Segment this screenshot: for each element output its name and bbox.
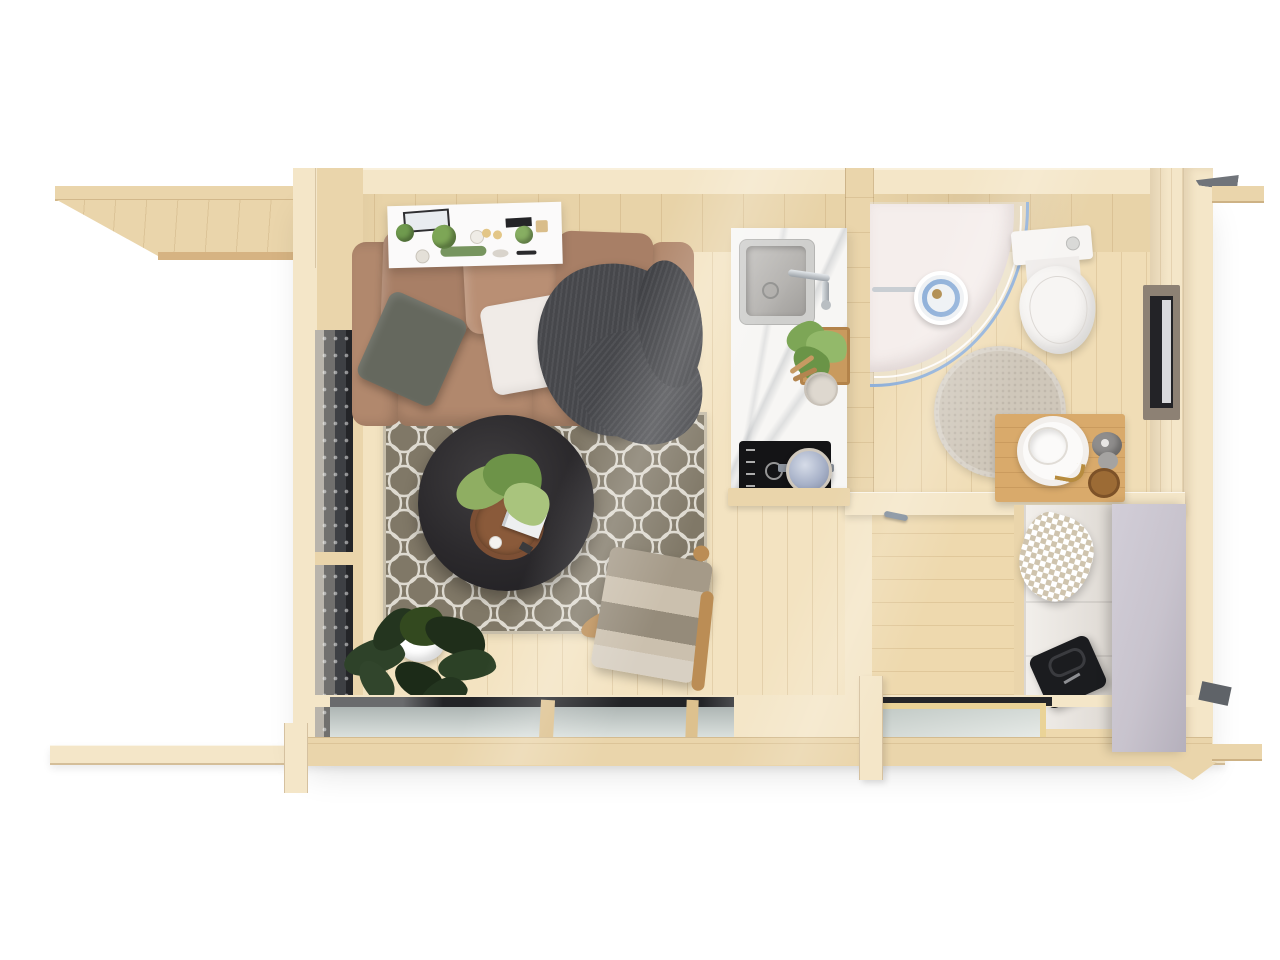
wall-shelf	[387, 202, 563, 269]
beam-stub-bottom-right	[1212, 744, 1262, 761]
right-wall-outer-post	[1183, 168, 1213, 765]
shelf-plant-3	[515, 225, 533, 243]
living-window-frame	[330, 697, 734, 707]
armchair	[576, 532, 729, 696]
shower-head	[914, 271, 968, 325]
door-mid-bar	[315, 552, 353, 565]
utensil-cup	[804, 372, 838, 406]
vessel-sink-rim	[1028, 427, 1068, 465]
toilet	[1008, 222, 1105, 359]
shelf-pen	[516, 250, 536, 255]
corner-post-top-left	[293, 168, 316, 268]
cooktop-mark-2	[746, 461, 755, 463]
shelf-bowl-2	[415, 249, 429, 263]
cooktop-mark-4	[746, 485, 755, 487]
shelf-egg-2	[493, 230, 502, 239]
post-bottom-middle	[859, 676, 883, 780]
kitchen-faucet-base	[821, 300, 831, 310]
porch-top-rail	[55, 186, 300, 201]
cooktop-mark-3	[746, 473, 755, 475]
shower-head-center	[932, 289, 942, 299]
wardrobe-shelf-line-1	[1026, 601, 1122, 603]
gray-sliding-door	[1112, 504, 1186, 752]
shelf-plant-2	[432, 225, 457, 250]
living-window-mullion-2	[685, 700, 698, 740]
cooktop-mark-1	[746, 449, 755, 451]
top-wall-outer-beam	[293, 168, 1212, 197]
stone-soap-dot	[1101, 439, 1109, 447]
shelf-sticks	[536, 220, 548, 232]
living-window-mullion-1	[539, 700, 555, 741]
bottom-wall-outer-face	[293, 737, 1212, 766]
shelf-egg-1	[482, 229, 491, 238]
shelf-greens-row2	[440, 246, 486, 257]
porch-deck-edge	[158, 252, 300, 260]
right-wall-window	[1143, 285, 1180, 420]
tray-cup	[489, 536, 502, 549]
beam-stub-top-right	[1212, 186, 1264, 203]
bag-handle	[1045, 645, 1089, 681]
post-bottom-left	[284, 723, 308, 793]
cabin-floorplan-render	[0, 0, 1280, 960]
sink-basin	[746, 246, 806, 316]
shower-head-blue-ring	[922, 279, 960, 317]
kitchen-sink	[739, 239, 815, 325]
sink-drain	[762, 282, 779, 299]
wood-wedge-under-beam	[1163, 762, 1217, 780]
wooden-jar	[1088, 468, 1120, 498]
right-window-curtain	[1162, 300, 1171, 403]
shelf-dish	[492, 249, 508, 257]
living-window-glass	[330, 707, 734, 739]
counter-wood-edge	[728, 488, 850, 506]
shelf-plant-1	[396, 224, 414, 242]
